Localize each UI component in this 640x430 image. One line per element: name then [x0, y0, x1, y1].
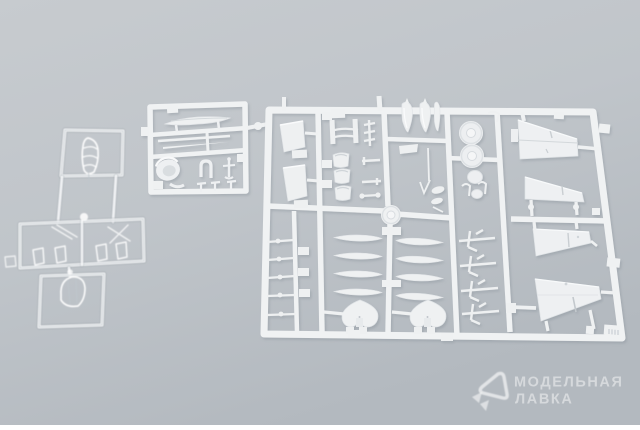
svg-text:МОДЕЛЬНАЯ: МОДЕЛЬНАЯ [514, 375, 624, 391]
svg-text:ЛАВКА: ЛАВКА [515, 392, 573, 408]
